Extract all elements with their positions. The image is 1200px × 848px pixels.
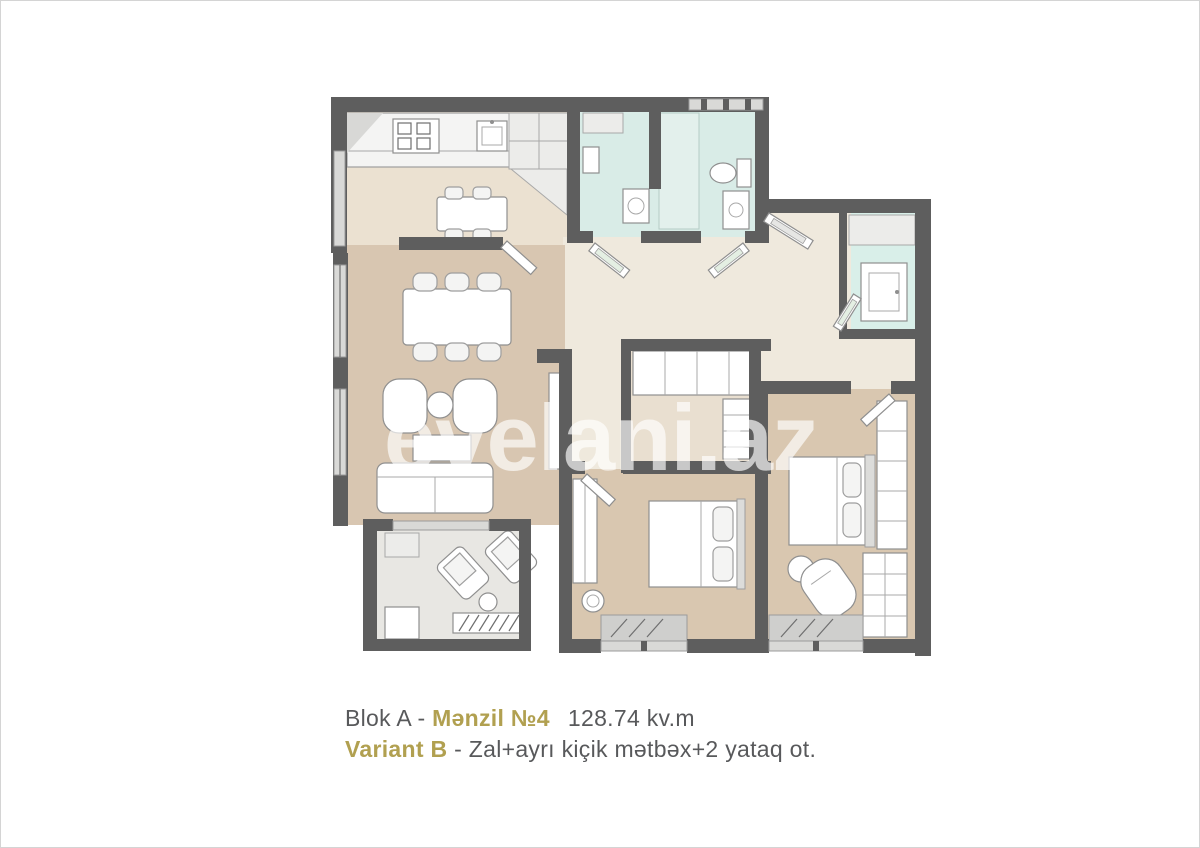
washing-machine-icon bbox=[623, 189, 649, 223]
caption-line-2: Variant B - Zal+ayrı kiçik mətbəx+2 yata… bbox=[345, 734, 816, 765]
cube-shelving bbox=[863, 553, 907, 637]
coffee-table bbox=[413, 435, 471, 461]
balcony-window bbox=[393, 521, 489, 530]
separator: - bbox=[447, 736, 468, 762]
vanity-icon bbox=[723, 191, 749, 229]
pouf bbox=[582, 590, 604, 612]
shower-zone bbox=[659, 113, 699, 229]
dining-table bbox=[403, 273, 511, 361]
side-table bbox=[427, 392, 453, 418]
apartment-area: 128.74 kv.m bbox=[568, 705, 695, 731]
bed bbox=[789, 455, 875, 547]
sink-icon bbox=[477, 120, 507, 151]
sink-icon bbox=[583, 147, 599, 173]
variant-description: Zal+ayrı kiçik mətbəx+2 yataq ot. bbox=[469, 736, 816, 762]
window bbox=[334, 151, 345, 246]
apartment-number: Mənzil №4 bbox=[432, 705, 550, 731]
tall-shelf bbox=[877, 401, 907, 549]
caption-line-1: Blok A - Mənzil №4128.74 kv.m bbox=[345, 703, 816, 734]
stove-icon bbox=[393, 119, 439, 153]
separator: - bbox=[411, 705, 432, 731]
variant-label: Variant B bbox=[345, 736, 447, 762]
shower-cabin-icon bbox=[861, 263, 907, 321]
sofa bbox=[377, 463, 493, 513]
floor-mat bbox=[453, 613, 527, 633]
block-label: Blok A bbox=[345, 705, 411, 731]
armchair bbox=[383, 379, 427, 433]
kitchen-cabinet bbox=[509, 113, 569, 169]
storage-box bbox=[385, 607, 419, 639]
round-table bbox=[479, 593, 497, 611]
caption: Blok A - Mənzil №4128.74 kv.m Variant B … bbox=[345, 703, 816, 765]
armchair bbox=[453, 379, 497, 433]
bed bbox=[649, 499, 745, 589]
page: evelani.az Blok A - Mənzil №4128.74 kv.m… bbox=[0, 0, 1200, 848]
